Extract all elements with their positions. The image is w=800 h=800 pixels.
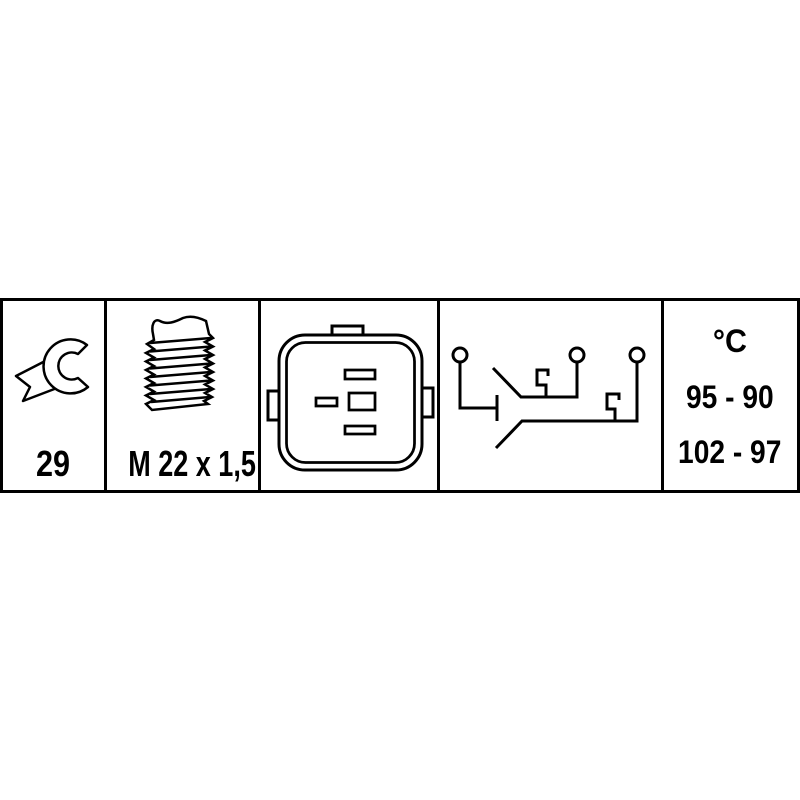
temperature-range-primary: 95 - 90 xyxy=(664,381,795,413)
thread-spec-label: M 22 x 1,5 xyxy=(107,446,258,482)
temperature-range-secondary: 102 - 97 xyxy=(664,436,795,468)
temperature-range-secondary-value: 102 - 97 xyxy=(678,436,781,468)
temperature-unit-value: °C xyxy=(712,325,746,357)
temperature-range-primary-value: 95 - 90 xyxy=(686,381,774,413)
wrench-size-value: 29 xyxy=(36,446,70,482)
wrench-icon xyxy=(16,339,88,401)
wrench-size-label: 29 xyxy=(3,446,104,482)
technical-spec-diagram: 29 M 22 x 1,5 °C 95 - 90 102 - 97 xyxy=(0,0,800,800)
circuit-icon xyxy=(453,348,644,448)
connector-icon xyxy=(268,326,433,470)
thread-icon xyxy=(146,317,213,410)
thread-spec-value: M 22 x 1,5 xyxy=(128,446,256,482)
temperature-unit-label: °C xyxy=(664,325,795,357)
